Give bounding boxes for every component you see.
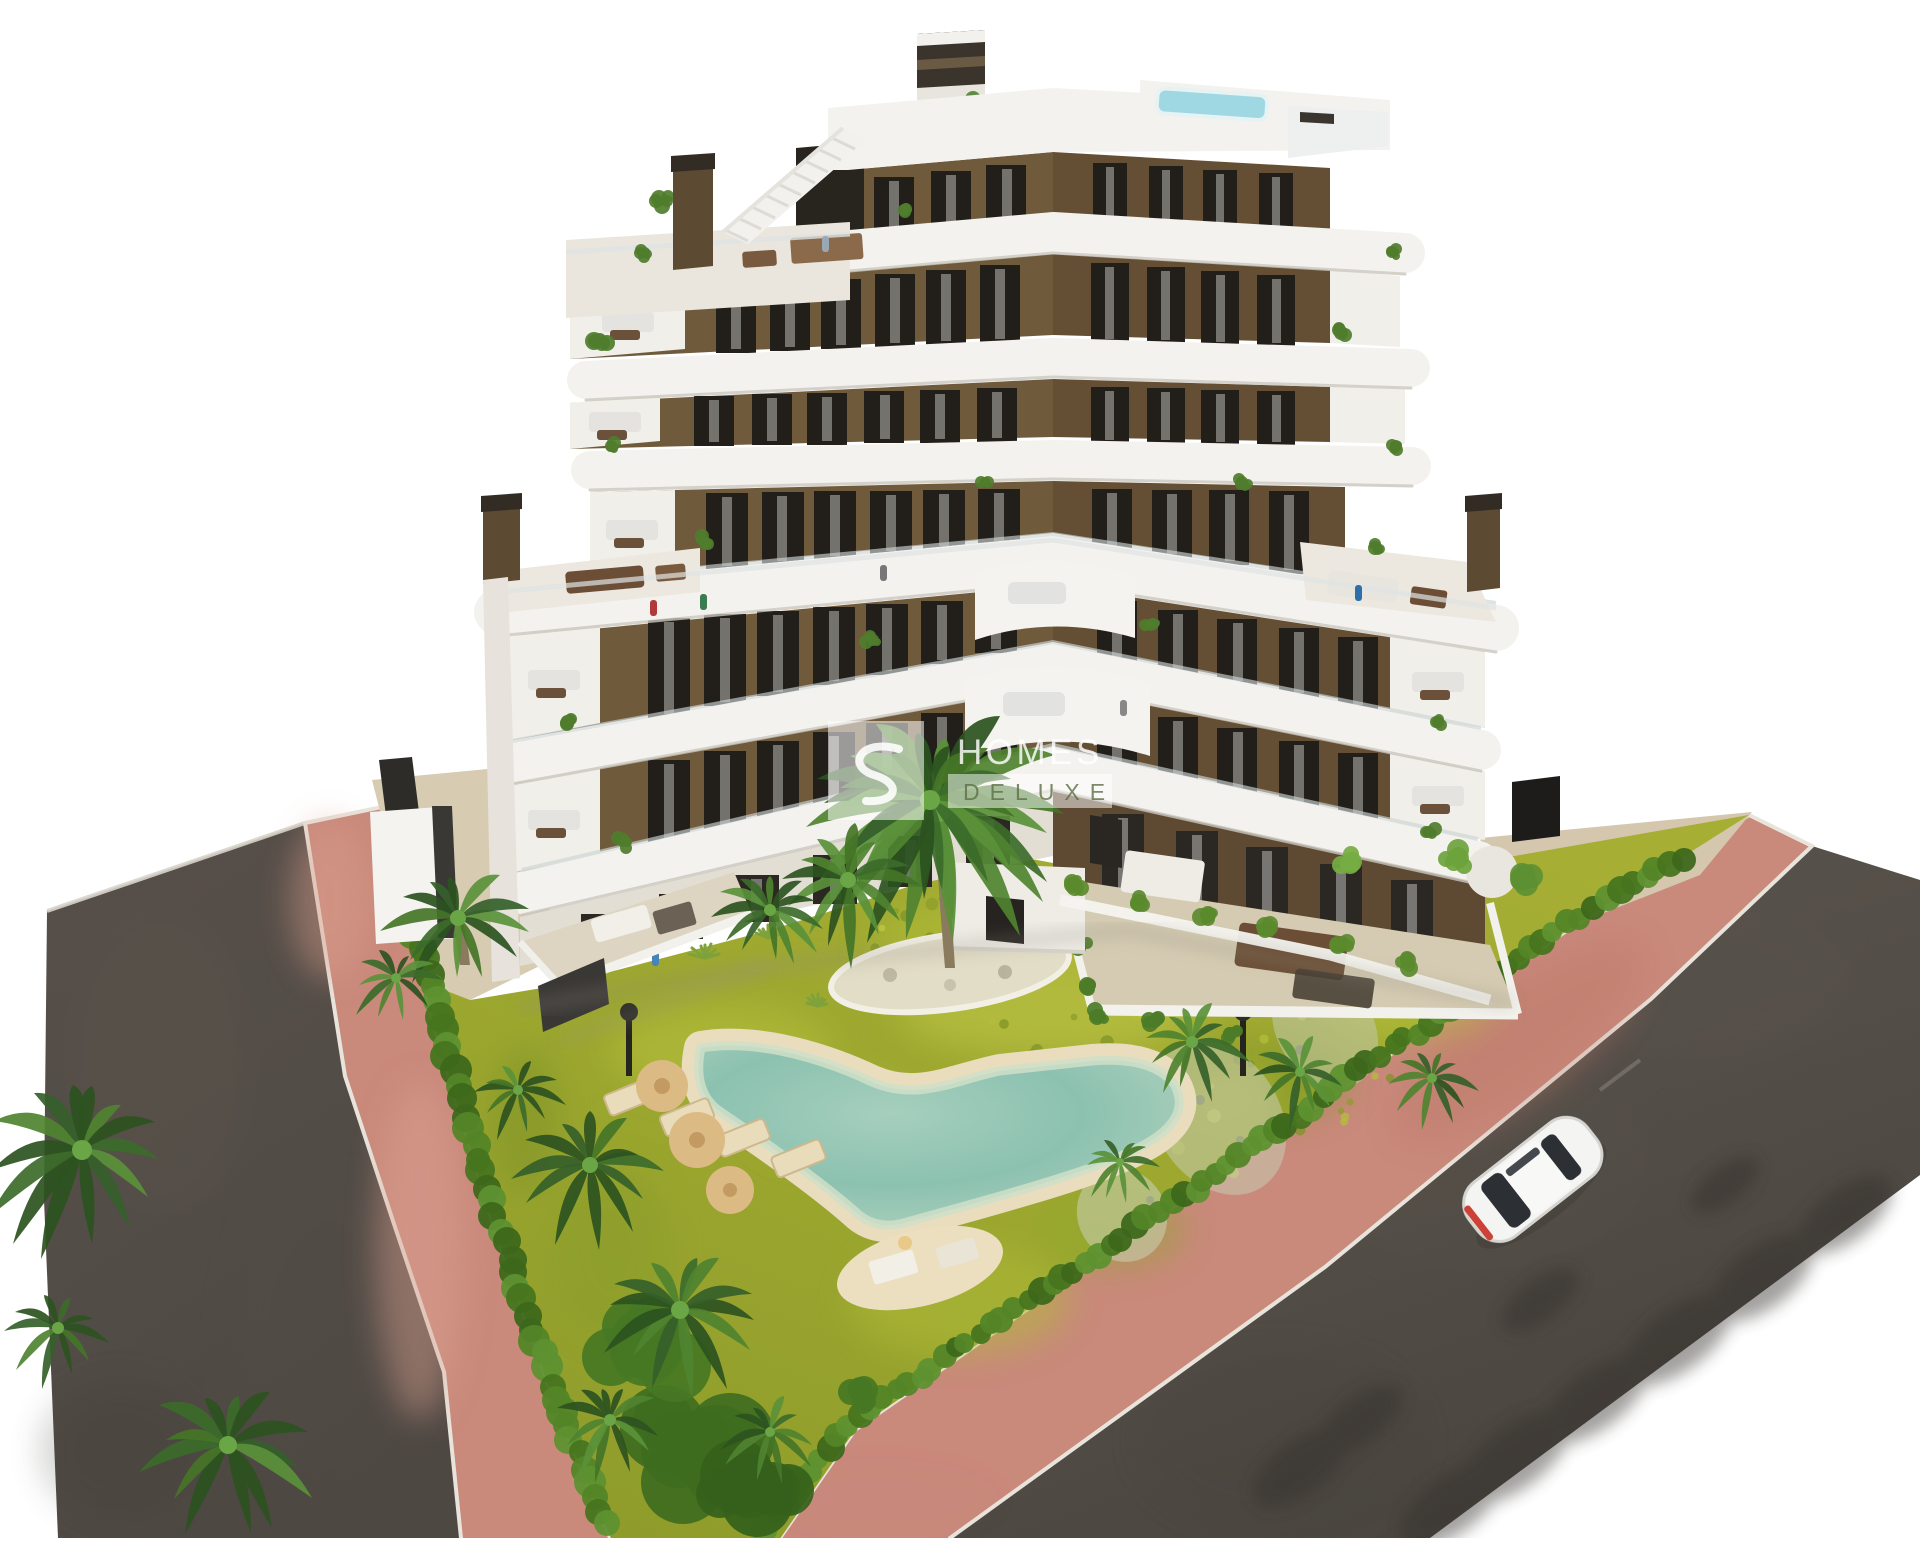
svg-text:HOMES: HOMES (957, 733, 1103, 772)
svg-text:DELUXE: DELUXE (963, 779, 1115, 805)
